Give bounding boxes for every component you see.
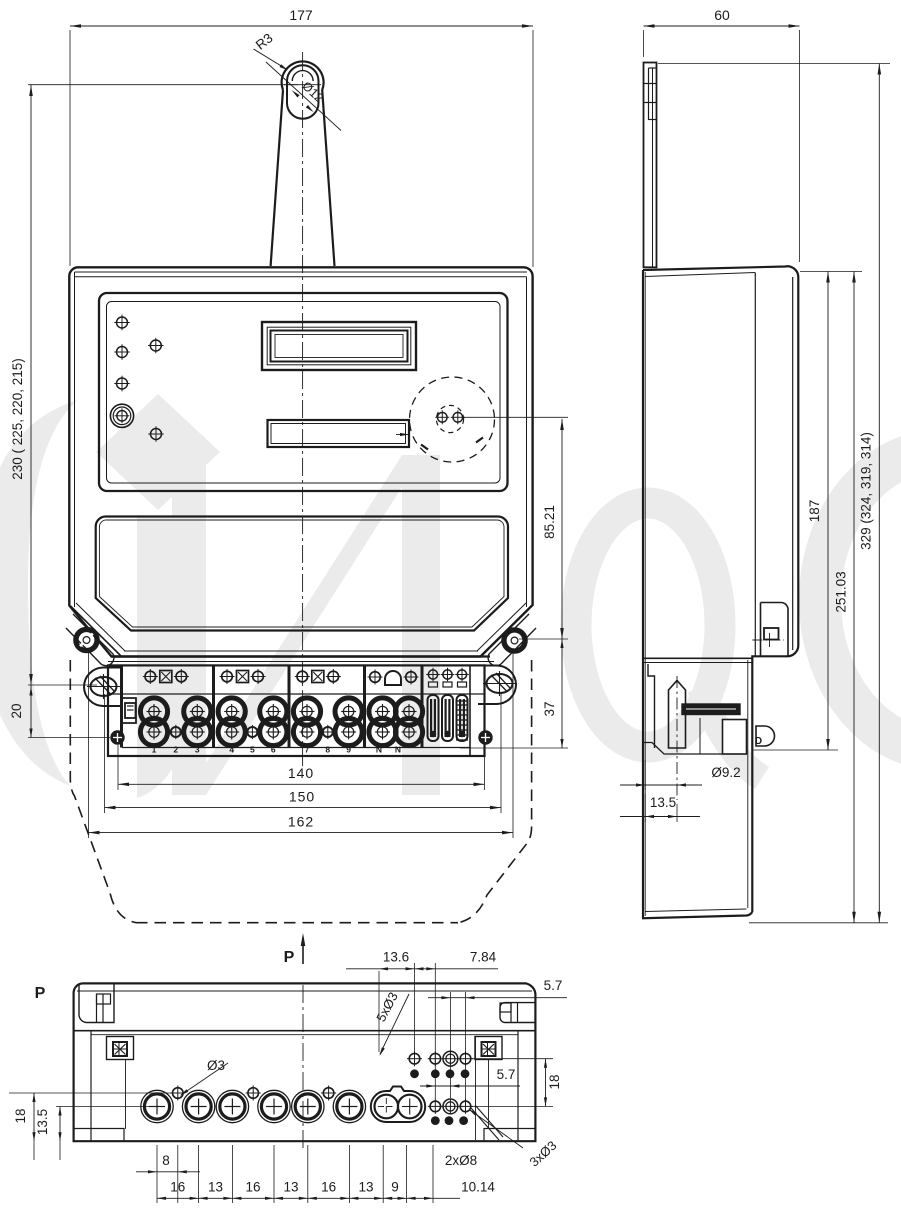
svg-text:16: 16: [170, 1180, 185, 1195]
svg-text:P: P: [284, 949, 295, 966]
svg-text:8: 8: [162, 1153, 170, 1168]
svg-text:4: 4: [229, 745, 234, 755]
svg-text:1: 1: [152, 745, 157, 755]
svg-text:85.21: 85.21: [542, 505, 557, 539]
svg-text:Ø9.2: Ø9.2: [711, 765, 740, 780]
svg-text:6: 6: [271, 745, 276, 755]
svg-text:13: 13: [283, 1180, 298, 1195]
svg-text:10.14: 10.14: [461, 1180, 495, 1195]
svg-text:60: 60: [714, 7, 730, 23]
svg-text:13.5: 13.5: [650, 795, 676, 810]
svg-text:13: 13: [208, 1180, 223, 1195]
svg-text:5: 5: [250, 745, 255, 755]
svg-text:162: 162: [288, 814, 314, 830]
svg-text:13.6: 13.6: [383, 950, 409, 965]
svg-text:230 ( 225, 220, 215): 230 ( 225, 220, 215): [10, 358, 25, 480]
svg-text:187: 187: [807, 500, 822, 523]
svg-text:3xØ3: 3xØ3: [526, 1138, 559, 1170]
svg-text:329 (324, 319, 314): 329 (324, 319, 314): [859, 432, 874, 550]
svg-text:2xØ8: 2xØ8: [445, 1153, 477, 1168]
svg-text:177: 177: [289, 7, 313, 23]
svg-text:5.7: 5.7: [497, 1067, 516, 1082]
svg-text:13.5: 13.5: [35, 1109, 50, 1135]
svg-text:8: 8: [325, 745, 330, 755]
svg-text:13: 13: [358, 1180, 373, 1195]
svg-text:37: 37: [542, 701, 557, 716]
svg-text:20: 20: [9, 703, 24, 718]
svg-text:N: N: [376, 745, 382, 755]
svg-text:9: 9: [391, 1180, 399, 1195]
svg-text:9: 9: [346, 745, 351, 755]
svg-text:N: N: [395, 745, 401, 755]
svg-text:16: 16: [321, 1180, 336, 1195]
svg-text:7: 7: [305, 745, 310, 755]
svg-text:3: 3: [195, 745, 200, 755]
svg-text:18: 18: [547, 1074, 562, 1089]
svg-text:R3: R3: [253, 30, 276, 52]
svg-text:P: P: [35, 985, 46, 1002]
svg-text:16: 16: [245, 1180, 260, 1195]
svg-text:2: 2: [173, 745, 178, 755]
svg-text:140: 140: [288, 765, 314, 781]
svg-text:5.7: 5.7: [544, 978, 563, 993]
svg-text:D: D: [755, 736, 762, 747]
svg-text:251.03: 251.03: [834, 571, 849, 612]
svg-text:18: 18: [13, 1108, 28, 1123]
svg-text:150: 150: [289, 789, 315, 805]
svg-text:7.84: 7.84: [470, 950, 497, 965]
